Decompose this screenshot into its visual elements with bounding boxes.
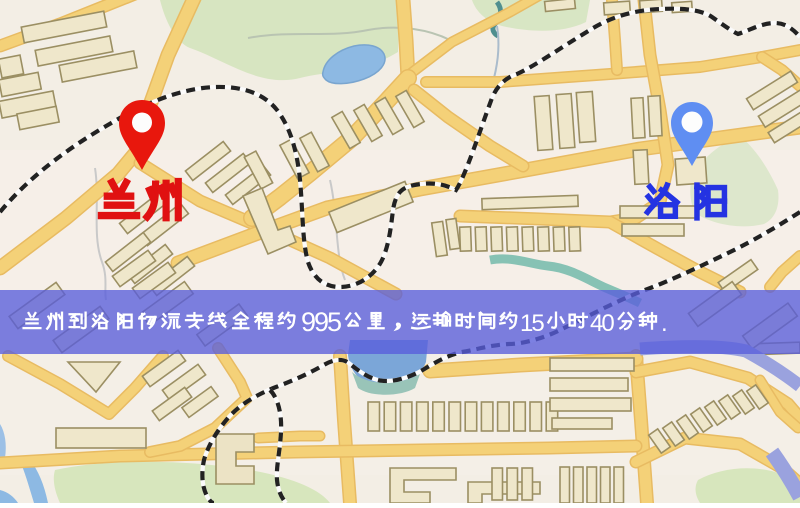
- svg-text:40: 40: [590, 310, 614, 337]
- svg-text:.: .: [661, 310, 668, 337]
- svg-text:995: 995: [301, 307, 341, 337]
- svg-text:15: 15: [520, 310, 544, 337]
